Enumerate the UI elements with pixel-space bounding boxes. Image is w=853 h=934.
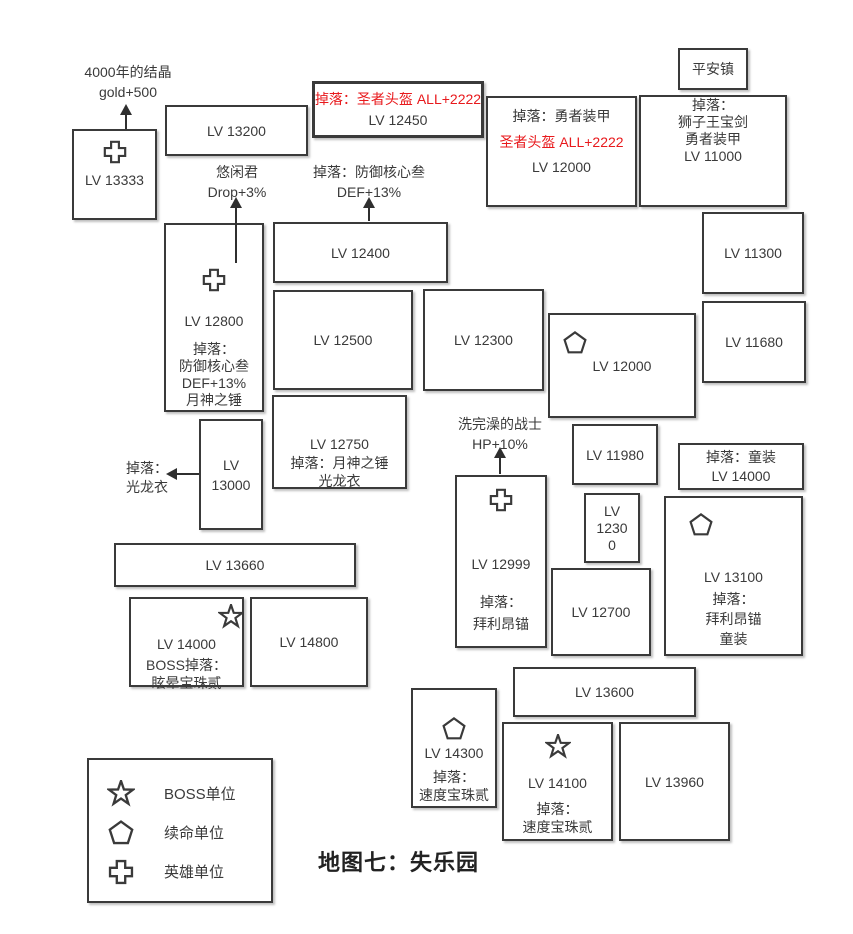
- node-text: 月神之锤: [186, 392, 242, 409]
- node-text: 掉落：月神之锤: [291, 454, 389, 472]
- label-text: 悠闲君: [187, 162, 287, 182]
- map-node-lv14300: LV 14300掉落：速度宝珠贰: [411, 688, 497, 808]
- map-label-crystal-bonus: 4000年的结晶gold+500: [70, 62, 186, 102]
- node-text: LV 12700: [572, 603, 631, 621]
- node-text: 1230: [596, 520, 627, 537]
- boss-star-icon: [545, 734, 571, 760]
- map-node-lv12750: LV 12750掉落：月神之锤光龙衣: [272, 395, 407, 489]
- game-map-canvas: LV 13333LV 13200掉落：圣者头盔 ALL+2222LV 12450…: [0, 0, 853, 934]
- node-text: LV 14000: [712, 467, 771, 486]
- node-text: LV 12400: [331, 244, 390, 262]
- legend-box: BOSS单位续命单位英雄单位: [87, 758, 273, 903]
- label-text: gold+500: [70, 82, 186, 102]
- hero-cross-icon: [102, 139, 128, 165]
- node-text: 13000: [212, 475, 251, 495]
- map-node-lv12300: LV 12300: [423, 289, 544, 391]
- node-text: LV 13200: [207, 122, 266, 140]
- node-text: 拜利昂锚: [706, 610, 762, 628]
- map-node-lv12300-small: LV12300: [584, 493, 640, 563]
- legend-label: BOSS单位: [164, 783, 236, 804]
- map-node-lv13000: LV13000: [199, 419, 263, 530]
- node-text: LV 12500: [314, 331, 373, 349]
- node-text: 狮子王宝剑: [678, 114, 748, 131]
- label-text: 4000年的结晶: [70, 62, 186, 82]
- node-text: DEF+13%: [182, 375, 246, 392]
- node-text: LV: [223, 455, 239, 475]
- node-text: 勇者装甲: [685, 131, 741, 148]
- map-node-lv13333: LV 13333: [72, 129, 157, 220]
- map-node-lv14000-boss: LV 14000BOSS掉落：眩晕宝珠贰: [129, 597, 244, 687]
- map-label-defense-core-drop: 掉落：防御核心叁DEF+13%: [296, 162, 442, 202]
- label-text: 光龙衣: [126, 478, 186, 497]
- map-label-guanglongyi-drop: 掉落：光龙衣: [126, 459, 186, 497]
- node-text: 童装: [720, 630, 748, 648]
- map-node-lv11000: 掉落：狮子王宝剑勇者装甲LV 11000: [639, 95, 787, 207]
- node-text: 掉落：勇者装甲: [513, 106, 611, 127]
- map-node-lv13200: LV 13200: [165, 105, 308, 156]
- node-text: 掉落：圣者头盔 ALL+2222: [315, 89, 481, 110]
- node-text: LV 11980: [586, 446, 644, 464]
- node-text: 光龙衣: [319, 472, 361, 490]
- hero-cross-icon: [488, 487, 514, 513]
- node-text: 0: [608, 537, 616, 554]
- node-text: 掉落：童装: [706, 448, 776, 467]
- node-text: LV 13600: [575, 683, 634, 701]
- revive-pentagon-icon: [562, 330, 588, 356]
- map-node-tongzhuang-drop: 掉落：童装LV 14000: [678, 443, 804, 490]
- map-node-lv11300: LV 11300: [702, 212, 804, 294]
- arrow-left-line: [175, 473, 199, 475]
- label-text: 掉落：防御核心叁: [296, 162, 442, 182]
- arrow-left-head-icon: [166, 468, 177, 480]
- node-text: LV 13660: [206, 556, 265, 574]
- node-text: LV 12300: [454, 331, 513, 349]
- map-node-lv12000-pent: LV 12000: [548, 313, 696, 418]
- legend-item-pentagon: 续命单位: [89, 813, 271, 852]
- arrow-up-line: [125, 113, 127, 129]
- map-label-youxianjun-bonus: 悠闲君Drop+3%: [187, 162, 287, 202]
- legend-item-cross: 英雄单位: [89, 852, 271, 891]
- node-text: 掉落：: [480, 593, 522, 611]
- arrow-up-line: [499, 456, 501, 474]
- node-text: 掉落：: [433, 768, 475, 786]
- node-text: LV 14300: [425, 744, 484, 762]
- arrow-up-line: [368, 206, 370, 221]
- node-text: LV 11000: [684, 148, 742, 165]
- node-text: LV: [604, 503, 620, 520]
- map-node-lv11980: LV 11980: [572, 424, 658, 485]
- arrow-up-line: [235, 206, 237, 263]
- node-text: 平安镇: [692, 60, 734, 78]
- revive-pentagon-icon: [441, 716, 467, 742]
- node-text: LV 13100: [704, 568, 763, 586]
- map-node-lv12400: LV 12400: [273, 222, 448, 283]
- node-text: LV 13333: [85, 171, 144, 189]
- node-text: LV 12800: [185, 313, 244, 330]
- node-text: LV 11680: [725, 333, 783, 351]
- map-node-lv11680: LV 11680: [702, 301, 806, 383]
- legend-item-star: BOSS单位: [89, 774, 271, 813]
- boss-star-icon: [106, 780, 136, 808]
- node-text: 掉落：: [537, 800, 579, 818]
- boss-star-icon: [218, 604, 244, 630]
- legend-label: 续命单位: [164, 822, 224, 843]
- arrow-up-head-icon: [120, 104, 132, 115]
- node-text: LV 12000: [532, 157, 591, 178]
- node-text: 掉落：: [713, 590, 755, 608]
- node-text: BOSS掉落：: [146, 656, 227, 674]
- node-text: LV 14100: [528, 774, 587, 792]
- node-text: 圣者头盔 ALL+2222: [499, 132, 623, 153]
- node-text: LV 12000: [593, 357, 652, 375]
- map-node-lv14800: LV 14800: [250, 597, 368, 687]
- map-node-lv13960: LV 13960: [619, 722, 730, 841]
- map-node-lv12500: LV 12500: [273, 290, 413, 390]
- node-text: LV 12750: [310, 435, 369, 453]
- node-text: 速度宝珠贰: [523, 818, 593, 836]
- map-node-lv14100: LV 14100掉落：速度宝珠贰: [502, 722, 613, 841]
- node-text: LV 12450: [369, 110, 428, 131]
- revive-pentagon-icon: [688, 512, 714, 538]
- node-text: 防御核心叁: [179, 358, 249, 375]
- node-text: 掉落：: [193, 341, 235, 358]
- node-text: LV 12999: [472, 555, 531, 573]
- map-title: 地图七：失乐园: [318, 845, 479, 877]
- hero-cross-icon: [201, 267, 227, 293]
- legend-label: 英雄单位: [164, 861, 224, 882]
- map-node-lv12999: LV 12999掉落：拜利昂锚: [455, 475, 547, 648]
- node-text: LV 14800: [280, 633, 339, 651]
- node-text: 掉落：: [692, 97, 734, 114]
- label-text: 洗完澡的战士: [438, 414, 562, 434]
- arrow-up-head-icon: [230, 197, 242, 208]
- map-node-lv12700: LV 12700: [551, 568, 651, 656]
- node-text: 拜利昂锚: [473, 615, 529, 633]
- arrow-up-head-icon: [363, 197, 375, 208]
- node-text: 速度宝珠贰: [419, 786, 489, 804]
- map-node-lv13660: LV 13660: [114, 543, 356, 587]
- node-text: LV 11300: [724, 244, 782, 262]
- label-text: 掉落：: [126, 459, 186, 478]
- node-text: LV 13960: [645, 773, 704, 791]
- map-node-lv13100: LV 13100掉落：拜利昂锚童装: [664, 496, 803, 656]
- node-text: LV 14000: [157, 635, 216, 653]
- map-node-lv12800: LV 12800掉落：防御核心叁DEF+13%月神之锤: [164, 223, 264, 412]
- map-node-lv12000-armor: 掉落：勇者装甲圣者头盔 ALL+2222LV 12000: [486, 96, 637, 207]
- node-text: 眩晕宝珠贰: [152, 674, 222, 692]
- map-node-lv12450: 掉落：圣者头盔 ALL+2222LV 12450: [312, 81, 484, 138]
- map-node-pinganzhen: 平安镇: [678, 48, 748, 90]
- revive-pentagon-icon: [106, 819, 136, 847]
- arrow-up-head-icon: [494, 447, 506, 458]
- hero-cross-icon: [106, 858, 136, 886]
- map-node-lv13600: LV 13600: [513, 667, 696, 717]
